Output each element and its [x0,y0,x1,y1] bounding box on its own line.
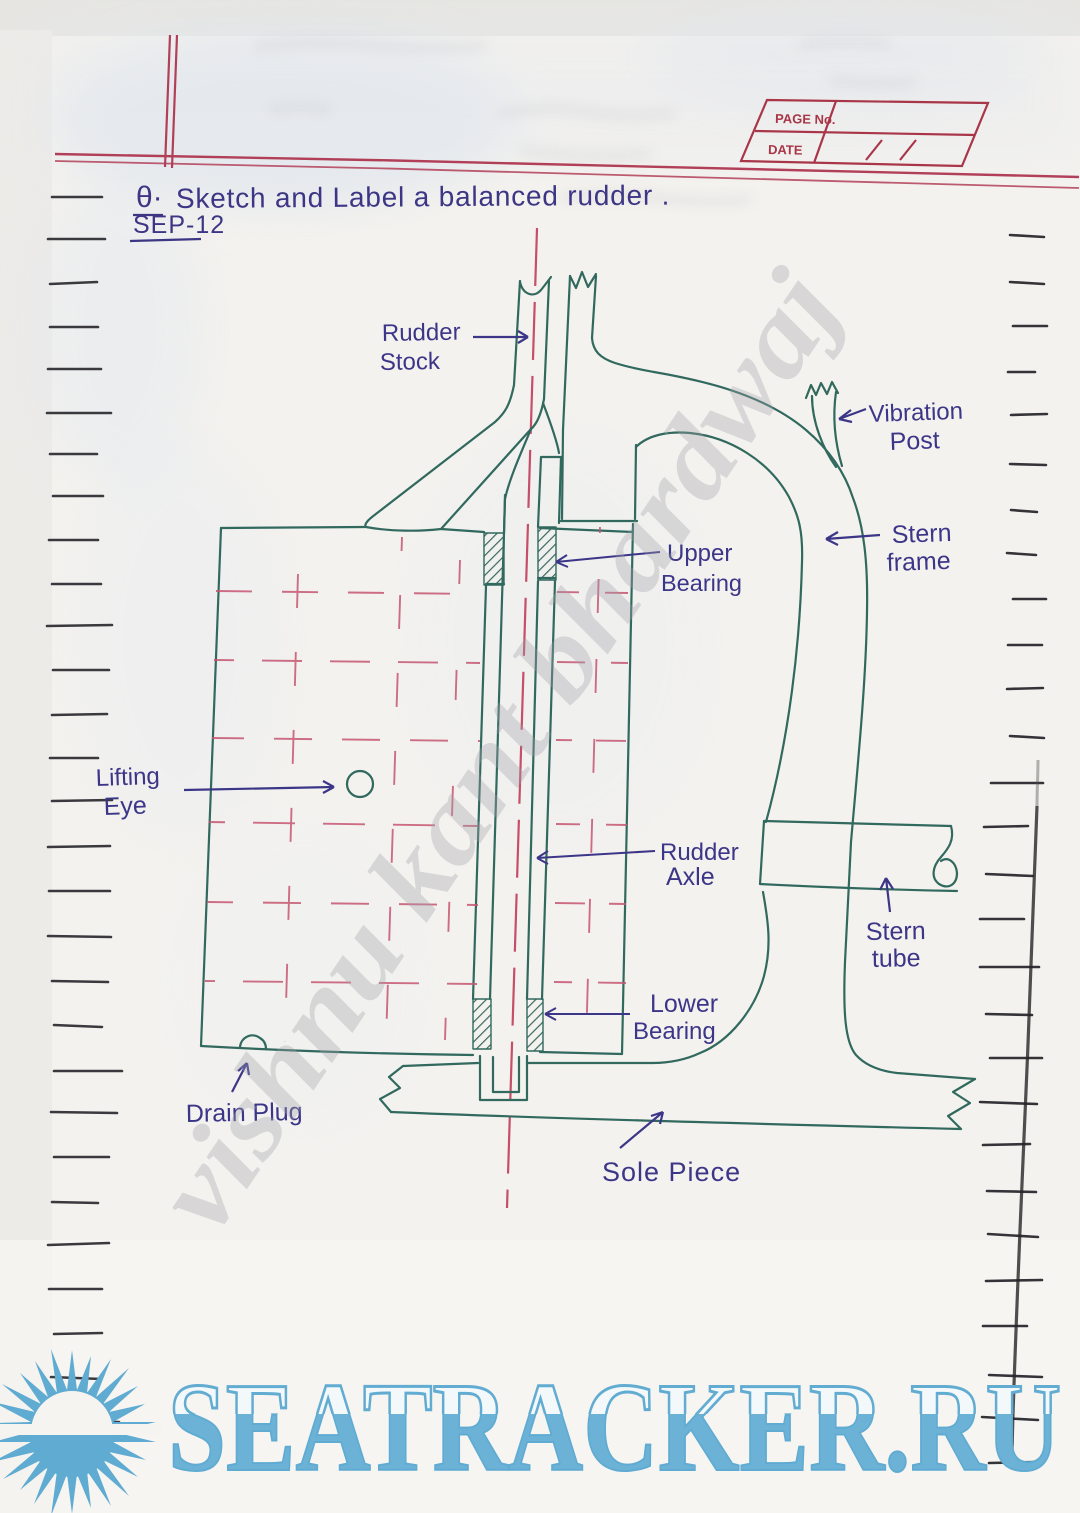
svg-text:SEP-12: SEP-12 [133,211,225,239]
svg-text:Bearing: Bearing [633,1018,716,1045]
svg-text:Stern: Stern [866,917,926,946]
svg-text:PAGE No.: PAGE No. [775,111,836,127]
svg-text:Axle: Axle [666,863,715,891]
svg-text:Sketch and Label a balanced ru: Sketch and Label a balanced rudder . [176,180,670,214]
svg-text:Stock: Stock [380,348,441,376]
svg-text:Lower: Lower [650,990,718,1018]
svg-text:DATE: DATE [768,142,803,158]
svg-text:Rudder: Rudder [382,319,461,347]
svg-text:Eye: Eye [103,792,147,821]
svg-text:tube: tube [872,944,921,973]
svg-text:Post: Post [889,426,940,456]
svg-text:Rudder: Rudder [660,839,739,866]
svg-text:Stern: Stern [891,519,952,549]
svg-text:Lifting: Lifting [95,763,160,792]
svg-text:θ·: θ· [136,181,163,214]
svg-text:Sole Piece: Sole Piece [602,1157,741,1187]
svg-text:Vibration: Vibration [868,398,963,428]
svg-text:frame: frame [886,547,951,577]
